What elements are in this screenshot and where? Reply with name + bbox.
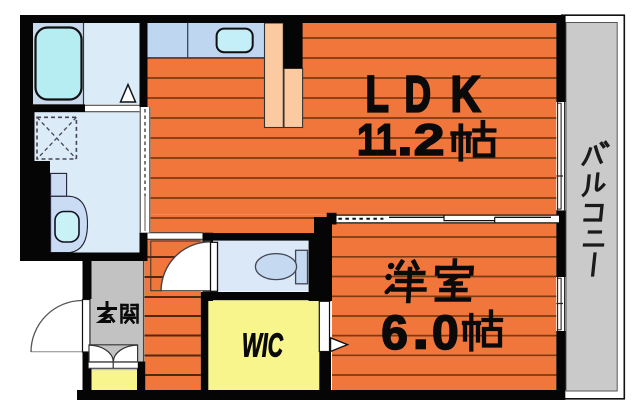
svg-text:K: K — [451, 66, 481, 123]
svg-text:11: 11 — [357, 115, 397, 165]
svg-text:6: 6 — [381, 307, 408, 360]
svg-text:WIC: WIC — [242, 327, 284, 364]
svg-text:0: 0 — [432, 307, 459, 360]
svg-text:2: 2 — [414, 115, 445, 165]
